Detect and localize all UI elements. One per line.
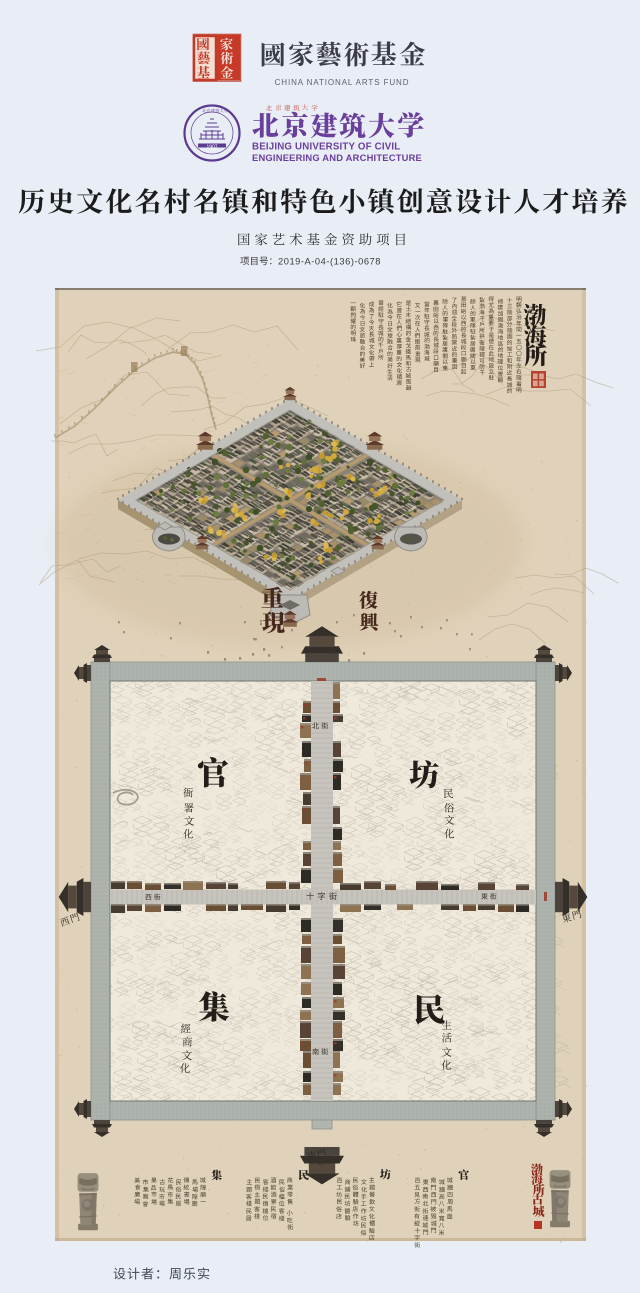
svg-text:ENGINEERING AND ARCHITECTURE: ENGINEERING AND ARCHITECTURE <box>252 152 422 163</box>
svg-text:BEIJING UNIVERSITY OF CIVIL: BEIJING UNIVERSITY OF CIVIL <box>252 142 400 153</box>
svg-text:CHINA NATIONAL ARTS FUND: CHINA NATIONAL ARTS FUND <box>275 78 410 87</box>
svg-text:1907: 1907 <box>206 145 217 151</box>
svg-text:2019-A-04-(136)-0678: 2019-A-04-(136)-0678 <box>278 257 381 267</box>
